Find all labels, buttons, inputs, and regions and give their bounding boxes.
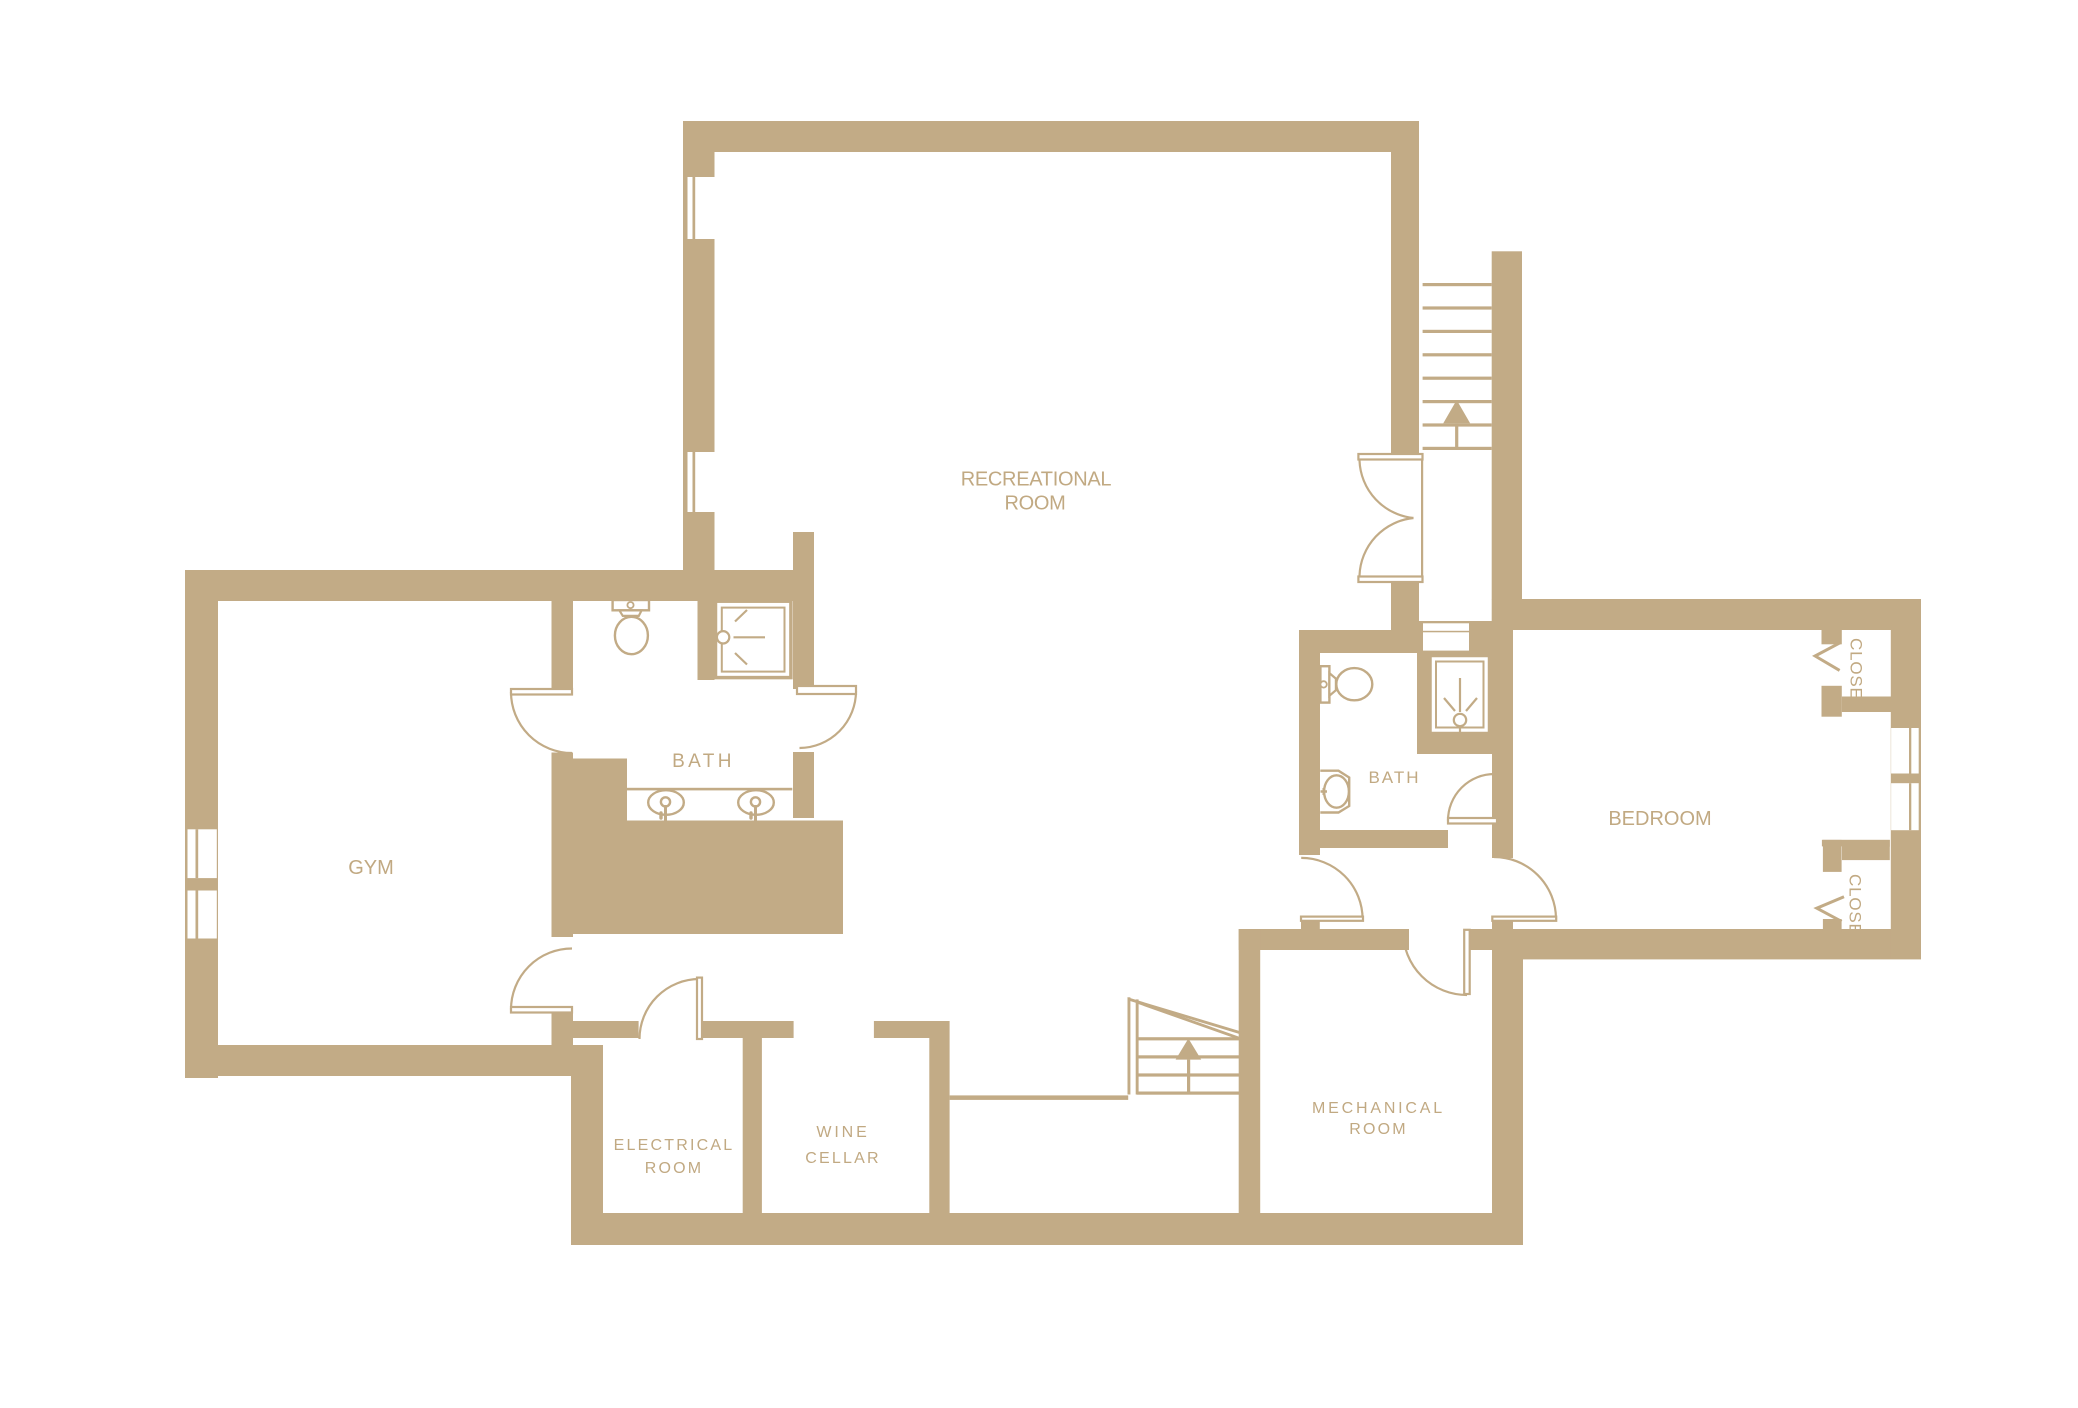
svg-text:CELLAR: CELLAR xyxy=(805,1150,880,1167)
svg-text:ROOM: ROOM xyxy=(1004,493,1065,515)
svg-text:BATH: BATH xyxy=(1368,768,1420,787)
svg-text:RECREATIONAL: RECREATIONAL xyxy=(961,469,1112,491)
svg-text:WINE: WINE xyxy=(816,1124,869,1141)
svg-text:BEDROOM: BEDROOM xyxy=(1608,808,1711,830)
svg-text:ROOM: ROOM xyxy=(1349,1121,1408,1138)
svg-text:GYM: GYM xyxy=(348,857,394,879)
svg-text:ROOM: ROOM xyxy=(645,1160,704,1177)
svg-text:BATH: BATH xyxy=(672,751,735,772)
svg-text:MECHANICAL: MECHANICAL xyxy=(1312,1100,1445,1117)
svg-text:ELECTRICAL: ELECTRICAL xyxy=(614,1137,735,1154)
